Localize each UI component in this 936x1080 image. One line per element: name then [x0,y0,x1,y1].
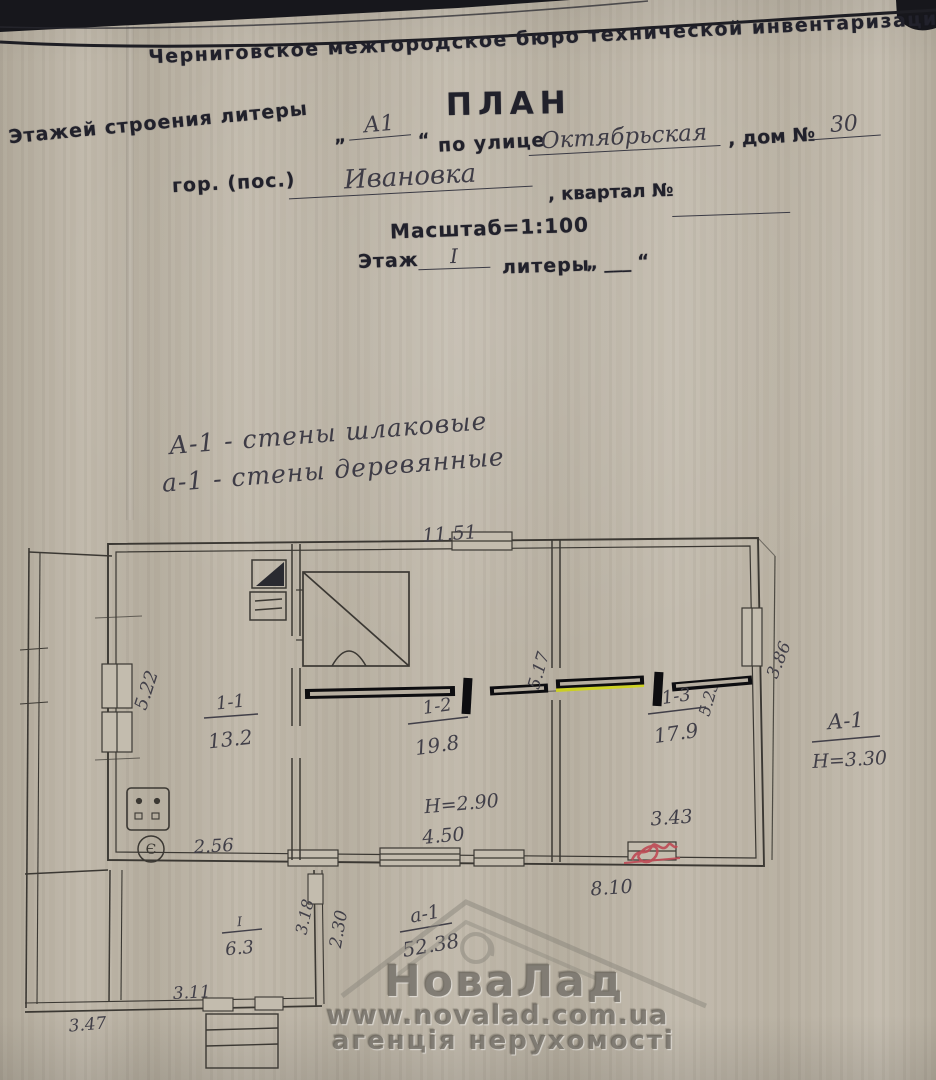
litery-label: литеры [502,253,591,278]
floor-field: І [418,243,491,270]
left-extension-wall [20,548,112,1008]
dim-room1-width: 2.56 [192,835,234,858]
litera-open-quote: „ [333,126,347,148]
stamp-letter: Є [146,842,157,858]
litera-value: А1 [363,111,396,139]
litery-blank: „ ___ “ [586,251,650,274]
city-value: Ивановка [343,159,477,196]
floor-value: І [450,244,459,268]
dim-top: 11.51 [422,521,478,547]
house-value: 30 [829,111,859,138]
watermark-tagline: агенція нерухомості [332,1026,675,1056]
note-height: Н=3.30 [811,747,888,773]
dim-room2-depth: 5.17 [524,649,554,691]
litera-close-quote: “ [417,130,431,152]
porch-area: 6.3 [224,937,254,960]
room3-id: 1-3 [660,684,692,709]
porch-id: І [235,915,243,931]
porch-dim-width-out: 3.47 [68,1013,108,1036]
room2-id: 1-2 [421,694,453,719]
porch-dim-width-in: 3.11 [172,982,211,1004]
flue-symbols [250,560,286,620]
ceiling-height-note: Н=2.90 [422,790,499,819]
page-title: ПЛАН [446,85,572,123]
dim-bottom-room2: 4.50 [420,823,465,849]
block-field [672,194,791,221]
house-label: , дом № [727,124,815,151]
scanned-plan-document: 5.23 11.51 1-1 13.2 1-2 [0,0,936,1080]
note-litera: А-1 [825,708,865,735]
litera-field: А1 [347,109,411,140]
room1-area: 13.2 [207,725,254,754]
dim-right-outer: 3.86 [763,639,796,682]
dim-room1-depth: 5.22 [131,668,163,713]
room1-id: 1-1 [215,691,246,715]
dim-bottom-room3: 3.43 [650,806,694,831]
gas-stove-symbol [127,788,169,830]
porch-dim-230: 2.30 [326,909,352,951]
stove-symbol [296,572,409,666]
porch-dim-depth: 3.18 [292,897,318,936]
steps-symbol [206,1014,278,1068]
house-field: 30 [807,110,881,141]
room2-area: 19.8 [413,730,460,760]
block-label: , квартал № [548,180,674,205]
floor-label: Этаж [358,249,419,273]
dim-bottom-main: 8.10 [590,876,634,901]
room3-area: 17.9 [652,718,700,748]
